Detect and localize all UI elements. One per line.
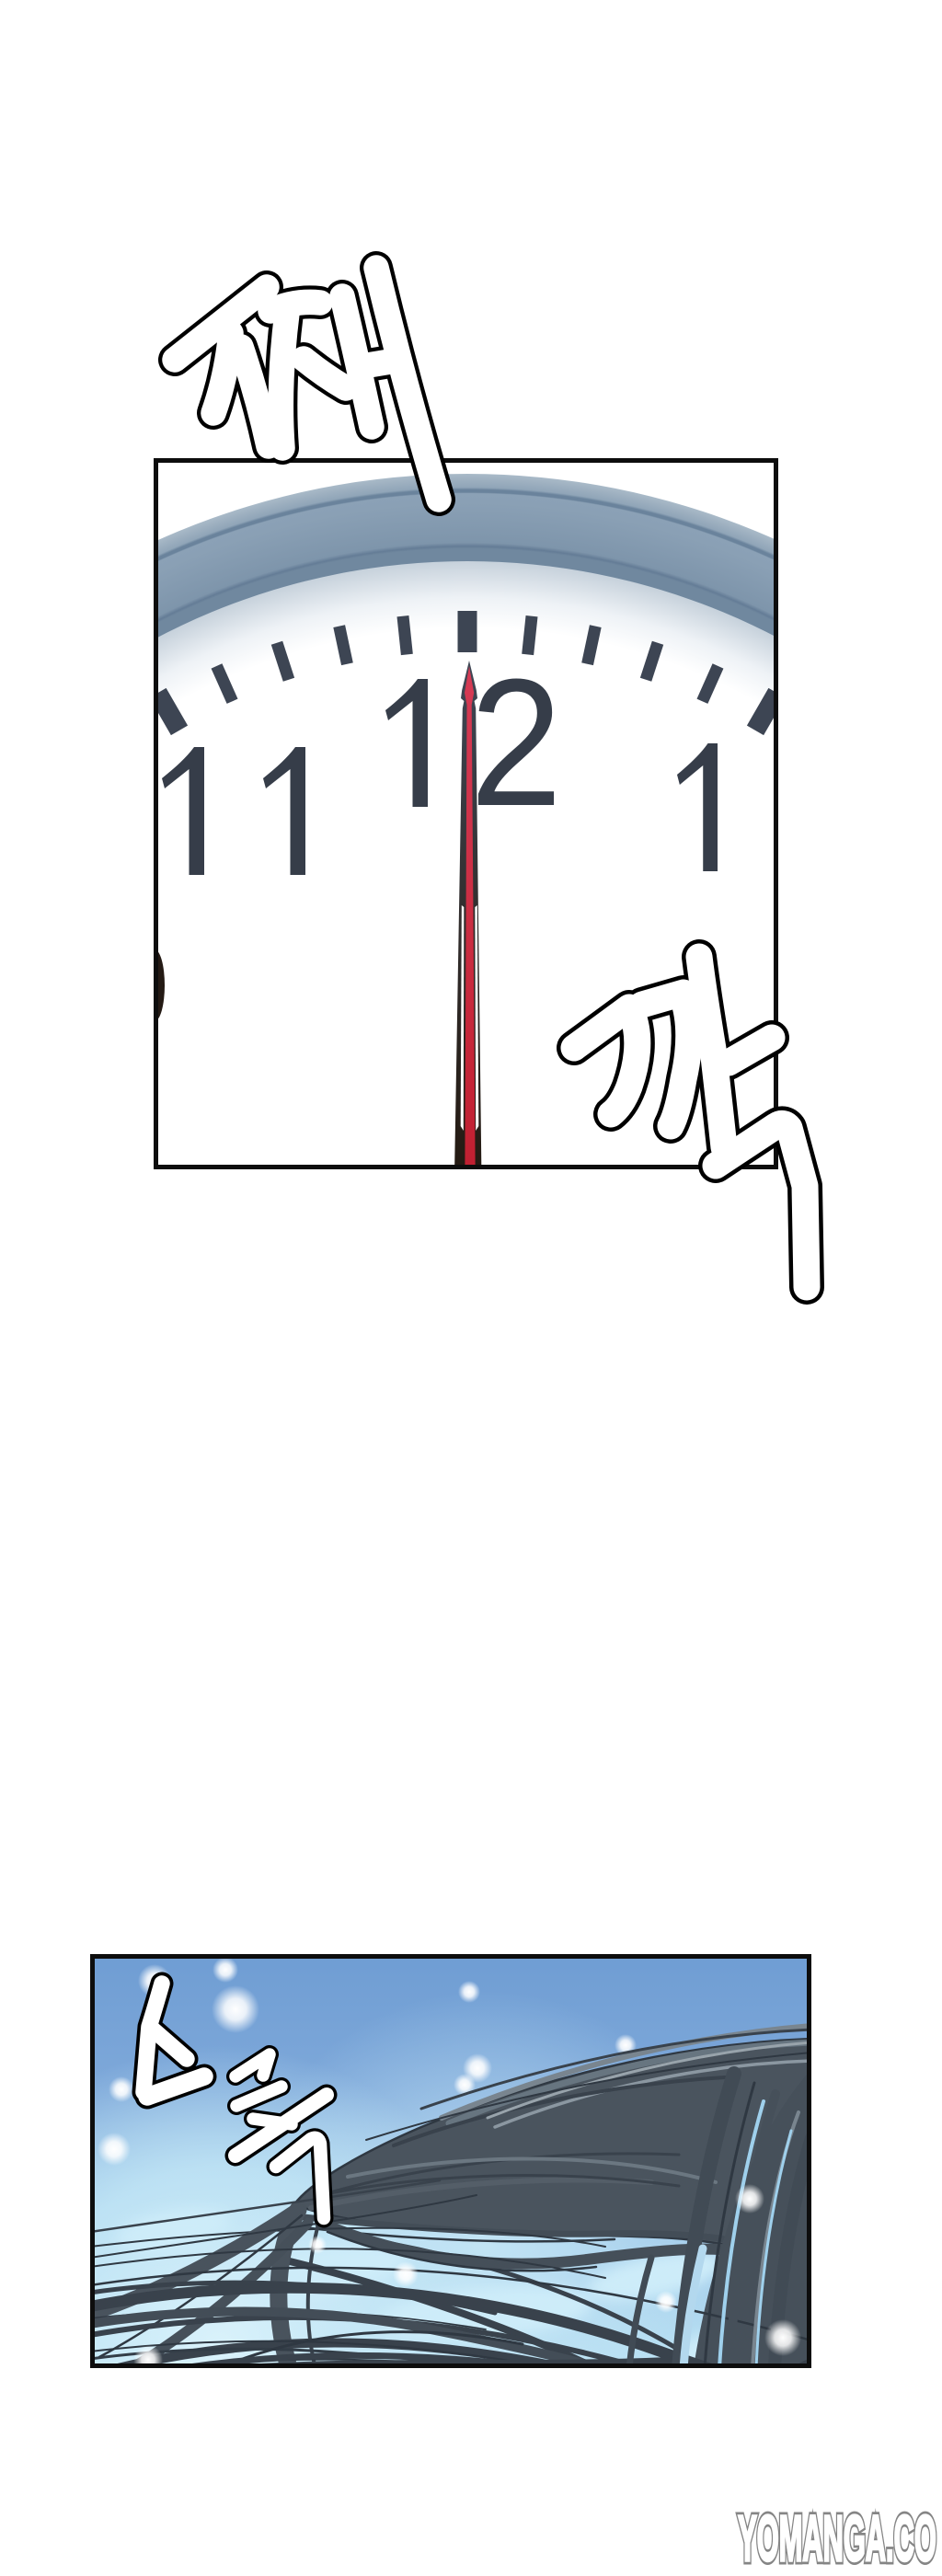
svg-text:2: 2 — [470, 642, 562, 845]
svg-text:YOMANGA.CO: YOMANGA.CO — [738, 2503, 936, 2571]
